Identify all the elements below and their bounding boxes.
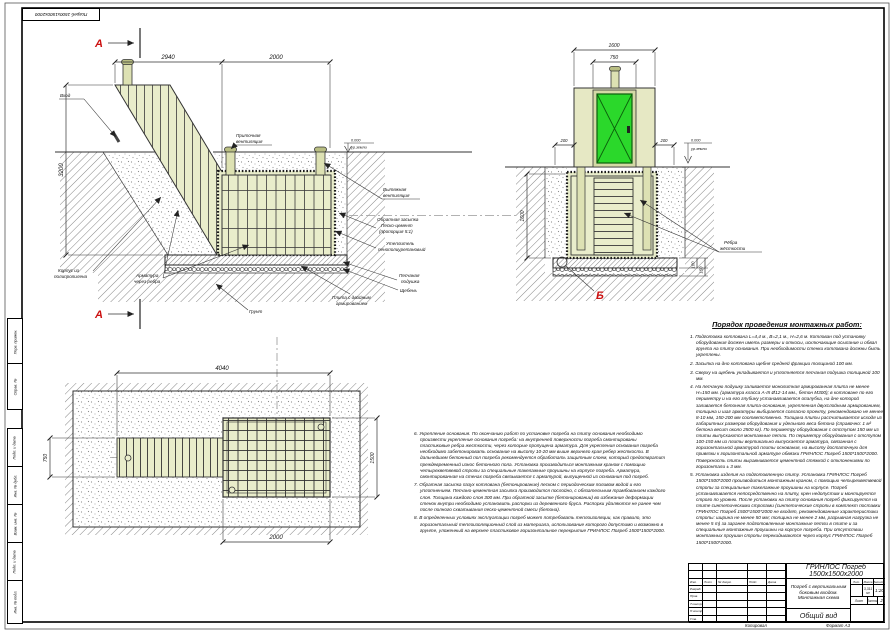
company-cell xyxy=(850,605,885,623)
dim-750-plan: 750 xyxy=(43,454,49,463)
plan-body-grid xyxy=(223,418,330,497)
dim-3200: 3200 xyxy=(59,163,65,177)
row-nkontr: Н.контр. xyxy=(689,608,703,615)
drawing-sheet: 2940 2000 3200 А А 0.000 ур.земли xyxy=(0,0,895,632)
elevation-value: 0.000 xyxy=(691,139,701,143)
note-item-4: 4. На песчаную подушку заливается моноли… xyxy=(690,384,884,470)
scale-value: 1:20 xyxy=(873,585,885,597)
vent-pipe xyxy=(123,63,132,85)
label-backfill: (пропорция 5:1) xyxy=(379,229,413,234)
col-list: Лист xyxy=(703,579,717,586)
notes-title: Порядок проведения монтажных работ: xyxy=(690,320,884,329)
dim-1500-plan: 1500 xyxy=(370,452,376,463)
side-stamp-label: Перв. примен. xyxy=(13,329,17,354)
dim-200-left: 200 xyxy=(560,138,569,143)
lug-circle xyxy=(125,455,131,461)
cellar-body-grid xyxy=(222,175,331,255)
dim-150: 150 xyxy=(699,266,704,274)
label-insulation: пенополиуретановый xyxy=(378,246,426,252)
label-supply-vent: вентиляция xyxy=(236,139,263,144)
note-item-5: 5. Установка изделия на подготовленную п… xyxy=(690,472,884,545)
section-a-view: 2940 2000 3200 А А 0.000 ур.земли xyxy=(54,28,516,329)
ladder xyxy=(594,178,633,255)
plan-corridor xyxy=(117,438,223,477)
sheet-number-header: Лист xyxy=(850,597,867,605)
label-entrance: Вход xyxy=(60,93,71,98)
dim-750: 750 xyxy=(610,55,619,61)
dim-100: 100 xyxy=(691,261,696,269)
lug-circle xyxy=(229,487,235,493)
section-b-view: 1600 750 200 200 1600 xyxy=(505,43,762,302)
dim-2940: 2940 xyxy=(160,55,175,61)
elevation-mark-b: 0.000 ур.земли xyxy=(684,139,712,164)
note-item-1: 1. Подготовка котлована L=4,4 м., В=2,1 … xyxy=(690,334,884,358)
side-stamp-vzam-inv: Взам. инв. № xyxy=(7,504,23,544)
col-izm: Изм. xyxy=(689,579,703,586)
title-block: Изм. Лист № докум. Подп. Дата Разраб. Пр… xyxy=(688,563,884,622)
view-name: Общий вид xyxy=(786,609,850,623)
side-stamp-podp-data-1: Подп. и дата xyxy=(7,428,23,468)
product-name: ГРИНЛОС Погреб 1500х1500х2000 xyxy=(786,564,885,579)
note-item-3: 3. Сверху на щебень укладывается и уплот… xyxy=(690,370,884,382)
side-stamp-label: Подп. и дата xyxy=(13,436,17,459)
door-handle xyxy=(627,126,630,133)
sheets-total-value: 2 xyxy=(877,597,885,605)
row-prov: Пров. xyxy=(689,593,703,600)
installation-notes-continued: 6. Укрепление основания. По окончанию ра… xyxy=(414,431,667,536)
side-stamp-perv-primen: Перв. примен. xyxy=(7,318,23,365)
dim-1600-top: 1600 xyxy=(608,43,619,49)
note-item-6: 6. Укрепление основания. По окончанию ра… xyxy=(414,431,667,480)
label-sand-bed: Песчаная xyxy=(399,273,420,278)
elevation-value: 0.000 xyxy=(351,139,361,143)
label-slab: Плита с двойным xyxy=(332,294,372,300)
label-pp-body: Корпус из xyxy=(58,268,80,273)
side-stamp-label: Инв. № подл. xyxy=(13,591,17,614)
col-ndok: № докум. xyxy=(717,579,748,586)
label-rebar: Арматура xyxy=(135,273,159,278)
note-item-8: 8. В определенных условиях эксплуатации … xyxy=(414,515,667,533)
dim-1600-depth: 1600 xyxy=(520,210,526,221)
plan-view: 4040 750 1500 2000 xyxy=(43,337,380,545)
side-stamp-label: Инв. № дубл. xyxy=(13,475,17,498)
dim-4040: 4040 xyxy=(215,366,229,372)
marker-a-letter: А xyxy=(94,309,103,321)
copied-label: Копировал xyxy=(745,623,767,628)
dim-2000-plan: 2000 xyxy=(268,535,283,541)
installation-notes: Порядок проведения монтажных работ: 1. П… xyxy=(690,320,884,548)
format-label: Формат А3 xyxy=(826,623,850,628)
row-tkontr: Т.контр. xyxy=(689,601,703,608)
top-left-stamp: Погреб 1500х1500х2000 xyxy=(22,8,100,21)
side-stamp-podp-data-2: Подп. и дата xyxy=(7,542,23,582)
label-insulation: Утеплитель xyxy=(386,241,415,246)
label-gravel: Щебень xyxy=(400,288,418,293)
section-marker-a-bottom: А xyxy=(94,299,140,329)
green-door xyxy=(597,94,632,163)
side-stamp-label: Справ. № xyxy=(13,378,17,395)
marker-b-letter: Б xyxy=(596,290,604,302)
label-stiffener-ribs: жёсткости xyxy=(719,246,746,251)
title-block-revision-grid: Изм. Лист № докум. Подп. Дата Разраб. Пр… xyxy=(689,564,786,623)
label-pp-body: полипропилена xyxy=(54,274,88,279)
label-sand-bed: подушка xyxy=(401,279,420,284)
label-exhaust-vent: Вытяжная xyxy=(383,187,407,192)
section-marker-a-top: А xyxy=(94,28,140,58)
col-podp: Подп. xyxy=(748,579,767,586)
note-item-7: 7. Обратная засыпка пазух котлована (бет… xyxy=(414,482,667,513)
desc-line: Монтажная схема xyxy=(798,596,840,602)
side-stamp-inv-podl: Инв. № подл. xyxy=(7,580,23,624)
elevation-mark-a: 0.000 ур.земли xyxy=(344,139,374,153)
side-stamp-label: Взам. инв. № xyxy=(13,513,17,536)
dim-2000: 2000 xyxy=(268,55,283,61)
row-utv: Утв. xyxy=(689,616,703,623)
label-slab: армированием xyxy=(336,301,368,306)
label-soil: Грунт xyxy=(249,309,263,314)
roof-vent-pipe xyxy=(611,70,619,88)
label-backfill: Обратная засыпка xyxy=(377,217,419,222)
mass-value: 3,311 м³ xyxy=(862,585,873,597)
label-stiffener-ribs: Рёбра xyxy=(724,240,738,245)
lug-circle xyxy=(318,424,324,430)
col-data: Дата xyxy=(767,579,786,586)
label-rebar: через ребра xyxy=(134,279,161,284)
side-stamp-label: Подп. и дата xyxy=(13,550,17,573)
dim-200-right: 200 xyxy=(660,138,669,143)
sheets-total-header: Листов xyxy=(867,597,877,605)
exhaust-vent-pipe xyxy=(316,151,325,175)
supply-vent-pipe xyxy=(226,151,235,175)
row-razrab: Разраб. xyxy=(689,586,703,593)
label-supply-vent: Приточная xyxy=(236,133,261,138)
label-exhaust-vent: вентиляция xyxy=(383,193,410,198)
marker-a-letter: А xyxy=(94,38,103,50)
side-stamp-sprav: Справ. № xyxy=(7,363,23,410)
note-item-2: 2. Засыпка на дно котлована щебня средне… xyxy=(690,361,884,367)
side-stamp-inv-dubl: Инв. № дубл. xyxy=(7,466,23,506)
elevation-ref: ур.земли xyxy=(690,147,708,151)
stamp-text: Погреб 1500х1500х2000 xyxy=(35,12,87,17)
label-backfill: Песко-цемент xyxy=(381,223,413,228)
drawing-description: Погреб с вертикальным боковым входом. Мо… xyxy=(786,579,850,609)
lit-value xyxy=(850,585,862,597)
elevation-ref: ур.земли xyxy=(350,146,368,150)
